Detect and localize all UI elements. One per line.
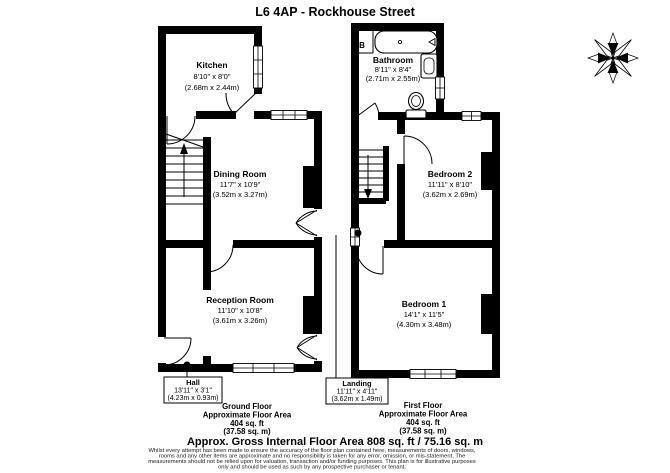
bedroom2-door	[404, 136, 432, 164]
dining-metric: (3.52m x 3.27m)	[213, 190, 268, 199]
ground-floor-stairs	[166, 134, 203, 204]
dining-window	[271, 111, 307, 120]
hall-metric: (4.23m x 0.93m)	[168, 395, 219, 402]
hall-label-box: Hall 13'11" x 3'1" (4.23m x 0.93m)	[164, 377, 222, 403]
toilet	[406, 93, 426, 119]
landing-dims: 11'11" x 4'11"	[337, 389, 378, 396]
bedroom2-chimney-breast	[481, 152, 496, 190]
ground-floor-plan: Kitchen 8'10" x 8'0" (2.68m x 2.44m) Din…	[158, 26, 322, 436]
first-floor-plan: B	[326, 23, 500, 436]
dining-name: Dining Room	[214, 169, 267, 179]
reception-window	[233, 364, 294, 373]
bathroom-dims: 8'11" x 8'4"	[375, 65, 412, 74]
dining-french-doors	[296, 210, 317, 236]
kitchen-name: Kitchen	[196, 60, 227, 70]
kitchen-dining-door	[226, 93, 256, 114]
reception-room-label: Reception Room 11'10" x 10'8" (3.61m x 3…	[206, 295, 274, 325]
hall-name: Hall	[186, 378, 200, 387]
front-door	[164, 338, 191, 365]
disclaimer-line-4: only and should be used as such by any p…	[218, 465, 406, 471]
landing-name: Landing	[342, 379, 372, 388]
bedroom2-metric: (3.62m x 2.69m)	[423, 190, 478, 199]
bathroom-window	[436, 77, 445, 99]
kitchen-window	[254, 46, 263, 88]
page-title: L6 4AP - Rockhouse Street	[255, 5, 415, 19]
bathroom-label: Bathroom 8'11" x 8'4" (2.71m x 2.55m)	[366, 55, 421, 83]
landing-metric: (3.62m x 1.49m)	[332, 396, 383, 403]
ground-floor-summary: Ground Floor Approximate Floor Area 404 …	[203, 402, 292, 436]
dining-chimney-breast	[303, 166, 318, 208]
landing-label-box: Landing 11'11" x 4'11" (3.62m x 1.49m)	[326, 378, 388, 404]
bedroom1-door	[356, 246, 383, 274]
bathroom-name: Bathroom	[373, 55, 414, 65]
bedroom2-window	[462, 112, 481, 121]
floorplan-canvas: L6 4AP - Rockhouse Street	[0, 0, 670, 473]
boiler-cupboard: B	[359, 31, 373, 53]
floorplan-page: L6 4AP - Rockhouse Street	[0, 0, 670, 473]
bedroom1-name: Bedroom 1	[402, 299, 447, 309]
first-floor-summary: First Floor Approximate Floor Area 404 s…	[379, 401, 468, 436]
bedroom2-label: Bedroom 2 11'11" x 8'10" (3.62m x 2.69m)	[423, 169, 478, 199]
reception-metric: (3.61m x 3.26m)	[213, 316, 268, 325]
hall-marker-dot	[184, 362, 191, 369]
kitchen-dims: 8'10" x 8'0"	[194, 72, 231, 81]
dining-room-label: Dining Room 11'7" x 10'9" (3.52m x 3.27m…	[213, 169, 268, 199]
hall-dims: 13'11" x 3'1"	[174, 388, 212, 395]
stairs-down-arrow	[364, 189, 372, 199]
bedroom1-window	[410, 370, 456, 379]
kitchen-metric: (2.68m x 2.44m)	[185, 83, 240, 92]
reception-french-doors	[297, 335, 317, 360]
first-floor-area-m: (37.58 sq. m)	[399, 427, 447, 436]
reception-name: Reception Room	[206, 295, 274, 305]
sink	[421, 54, 437, 78]
reception-dims: 11'10" x 10'8"	[218, 306, 263, 315]
bedroom1-metric: (4.30m x 3.48m)	[397, 320, 452, 329]
bedroom1-dims: 14'1" x 11'5"	[404, 310, 445, 319]
kitchen-label: Kitchen 8'10" x 8'0" (2.68m x 2.44m)	[185, 60, 240, 92]
bathroom-metric: (2.71m x 2.55m)	[366, 74, 421, 83]
bedroom1-chimney-breast	[481, 294, 496, 334]
first-floor-stairs	[359, 150, 384, 199]
total-area-summary: Approx. Gross Internal Floor Area 808 sq…	[187, 436, 483, 448]
bathtub	[375, 31, 437, 53]
compass-rose-icon	[588, 33, 638, 83]
bedroom2-dims: 11'11" x 8'10"	[428, 180, 473, 189]
bedroom1-label: Bedroom 1 14'1" x 11'5" (4.30m x 3.48m)	[397, 299, 452, 329]
landing-marker-dot	[355, 230, 362, 237]
dining-dims: 11'7" x 10'9"	[220, 180, 261, 189]
boiler-label: B	[359, 41, 365, 50]
disclaimer: Whilst every attempt has been made to en…	[148, 448, 476, 471]
reception-chimney-breast	[303, 296, 318, 334]
ground-floor-area-m: (37.58 sq. m)	[223, 427, 271, 436]
bedroom2-name: Bedroom 2	[428, 169, 473, 179]
